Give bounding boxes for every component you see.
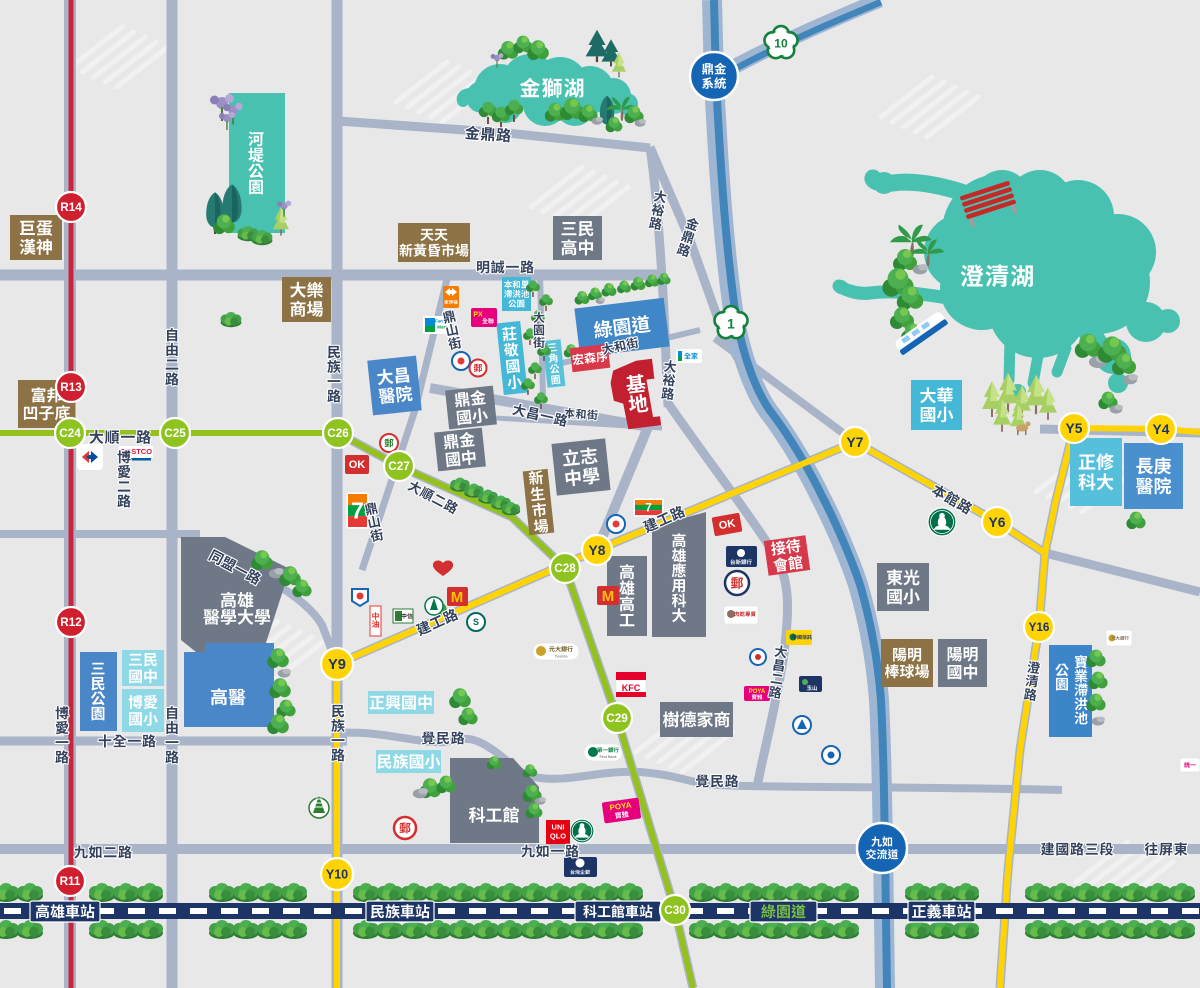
svg-text:7: 7: [351, 498, 364, 524]
svg-text:10: 10: [774, 37, 788, 51]
svg-text:R12: R12: [60, 616, 82, 629]
svg-text:M: M: [602, 588, 615, 605]
svg-text:Y8: Y8: [589, 543, 606, 558]
svg-text:Yuanta: Yuanta: [554, 653, 568, 658]
svg-text:Y4: Y4: [1153, 422, 1170, 437]
svg-text:POYA: POYA: [749, 689, 766, 695]
svg-text:C25: C25: [164, 427, 186, 440]
svg-text:QLO: QLO: [550, 832, 566, 841]
svg-text:R11: R11: [60, 875, 81, 888]
svg-text:C24: C24: [59, 427, 81, 440]
svg-text:C30: C30: [664, 904, 686, 917]
svg-text:UNI: UNI: [552, 823, 565, 832]
svg-text:Y5: Y5: [1066, 421, 1083, 436]
svg-text:C27: C27: [388, 460, 409, 473]
svg-text:Y10: Y10: [326, 867, 348, 881]
svg-text:PX: PX: [473, 311, 483, 318]
svg-text:First Bank: First Bank: [599, 755, 616, 759]
svg-text:KFC: KFC: [622, 683, 641, 693]
svg-text:S: S: [473, 617, 479, 627]
svg-text:Y6: Y6: [989, 515, 1006, 530]
svg-text:Y16: Y16: [1029, 621, 1050, 634]
svg-text:R13: R13: [60, 381, 82, 394]
svg-text:1: 1: [727, 316, 735, 331]
svg-text:C28: C28: [554, 562, 576, 575]
svg-text:M: M: [451, 589, 464, 606]
svg-text:Y9: Y9: [328, 657, 346, 673]
svg-text:R14: R14: [60, 201, 82, 214]
svg-text:7: 7: [645, 501, 652, 515]
svg-text:C29: C29: [606, 712, 628, 725]
svg-text:OK: OK: [349, 459, 366, 471]
svg-text:Y7: Y7: [847, 435, 864, 450]
svg-text:C26: C26: [327, 427, 349, 440]
